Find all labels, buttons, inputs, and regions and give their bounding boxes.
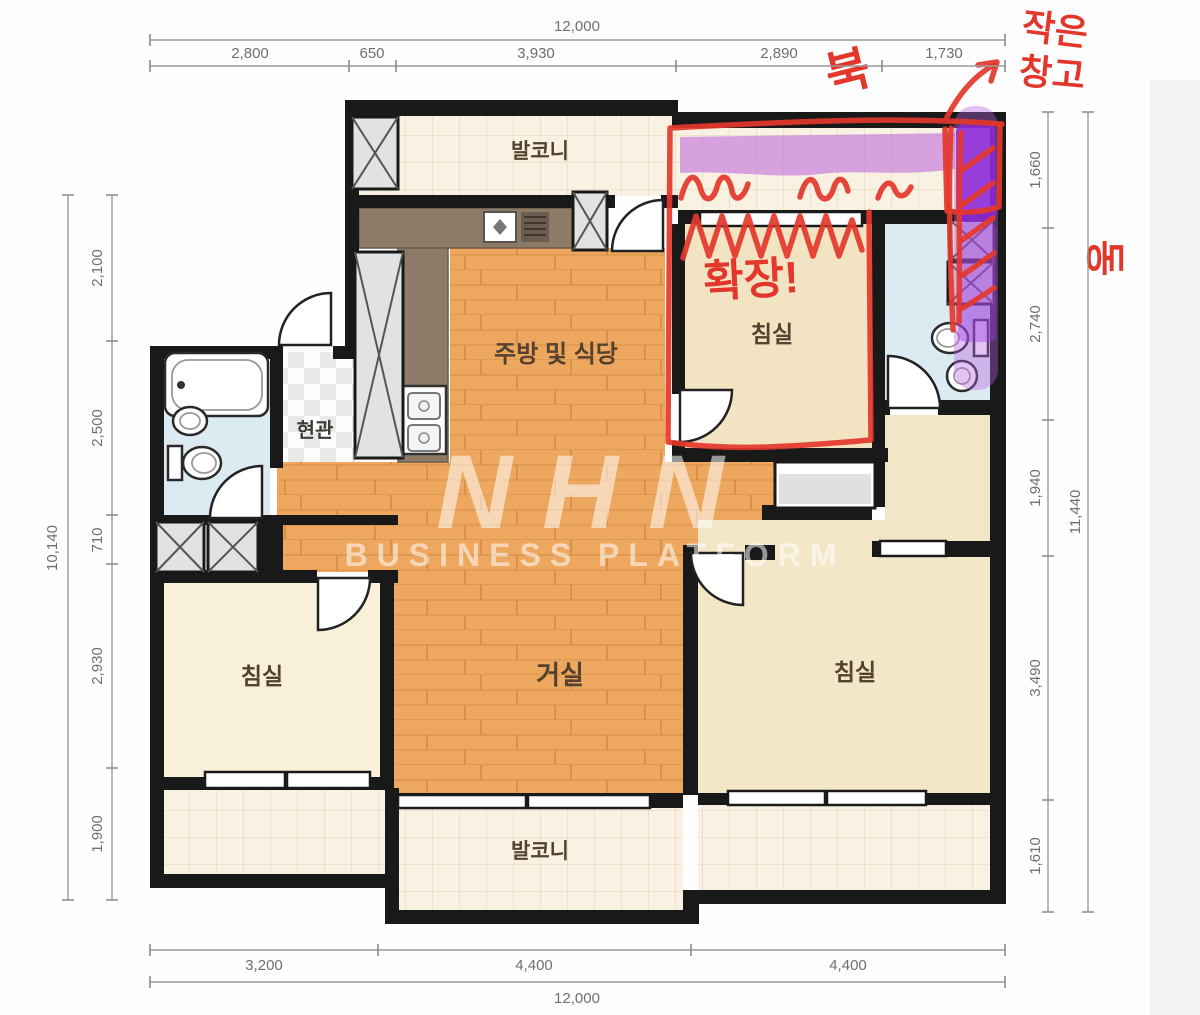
shaft-icon [352,117,398,189]
dim-left-seg2: 710 [89,527,106,552]
shaft-icon [208,522,258,572]
closet-icon [775,462,875,508]
dim-top-total: 12,000 [554,18,600,35]
dim-right-seg3: 3,490 [1027,659,1044,697]
dim-top-seg0: 2,800 [231,45,269,62]
highlight-strip [680,133,955,176]
dim-right-seg0: 1,660 [1027,151,1044,189]
window-small-room [880,541,946,556]
window-living-a [398,795,526,808]
label-kitchen: 주방 및 식당 [494,341,618,368]
window-living-b [528,795,650,808]
window-bedroom-right-b [827,791,926,805]
floor-plan-svg: 발코니 발코니 주방 및 식당 침실 침실 침실 현관 거실 NHN BUSIN… [0,0,1200,1015]
dim-right-seg1: 2,740 [1027,305,1044,343]
watermark-logo: NHN [436,434,753,551]
dim-left-seg0: 2,100 [89,249,106,287]
window-bedroom-left-a [205,772,285,788]
label-entrance: 현관 [297,419,334,442]
shaft-icon [355,252,403,458]
dim-right-total: 11,440 [1067,490,1084,535]
annotation-storage-line1: 작은 [1020,5,1091,54]
dim-left-seg4: 1,900 [89,815,106,853]
window-bedroom-right-a [728,791,825,805]
annotation-expand: 확장! [702,253,800,307]
annotation-storage-line2: 창고 [1017,50,1087,97]
dim-left-seg3: 2,930 [89,647,106,685]
shaft-icon [573,192,607,250]
dim-top-seg4: 1,730 [925,45,963,62]
dim-left-total: 10,140 [44,525,61,571]
sink-icon [173,407,207,435]
dim-bottom-seg2: 4,400 [829,957,867,974]
dim-right-seg2: 1,940 [1027,469,1044,507]
dim-left-seg1: 2,500 [89,409,106,447]
dim-bottom-total: 12,000 [554,990,600,1007]
label-bedroom-top: 침실 [751,321,793,347]
dim-top-seg2: 3,930 [517,45,555,62]
dim-top-seg3: 2,890 [760,45,798,62]
dim-top-seg1: 650 [359,45,384,62]
dim-bottom-seg1: 4,400 [515,957,553,974]
red-mark-vertical-b [959,133,961,322]
dim-right-seg4: 1,610 [1027,837,1044,875]
scan-edge-band [1150,80,1200,1015]
label-bedroom-left: 침실 [241,663,283,689]
floor-plan-screenshot: 발코니 발코니 주방 및 식당 침실 침실 침실 현관 거실 NHN BUSIN… [0,0,1200,1015]
toilet-icon [168,446,182,480]
watermark-subtitle: BUSINESS PLATFORM [345,537,846,573]
window-bedroom-left-b [287,772,370,788]
label-bedroom-right: 침실 [834,659,876,685]
label-balcony-top: 발코니 [511,140,569,163]
label-balcony-bottom: 발코니 [511,840,569,863]
shaft-icon [156,522,204,572]
label-living: 거실 [536,660,584,690]
dim-bottom-seg0: 3,200 [245,957,283,974]
red-mark-vertical-a [950,128,953,330]
